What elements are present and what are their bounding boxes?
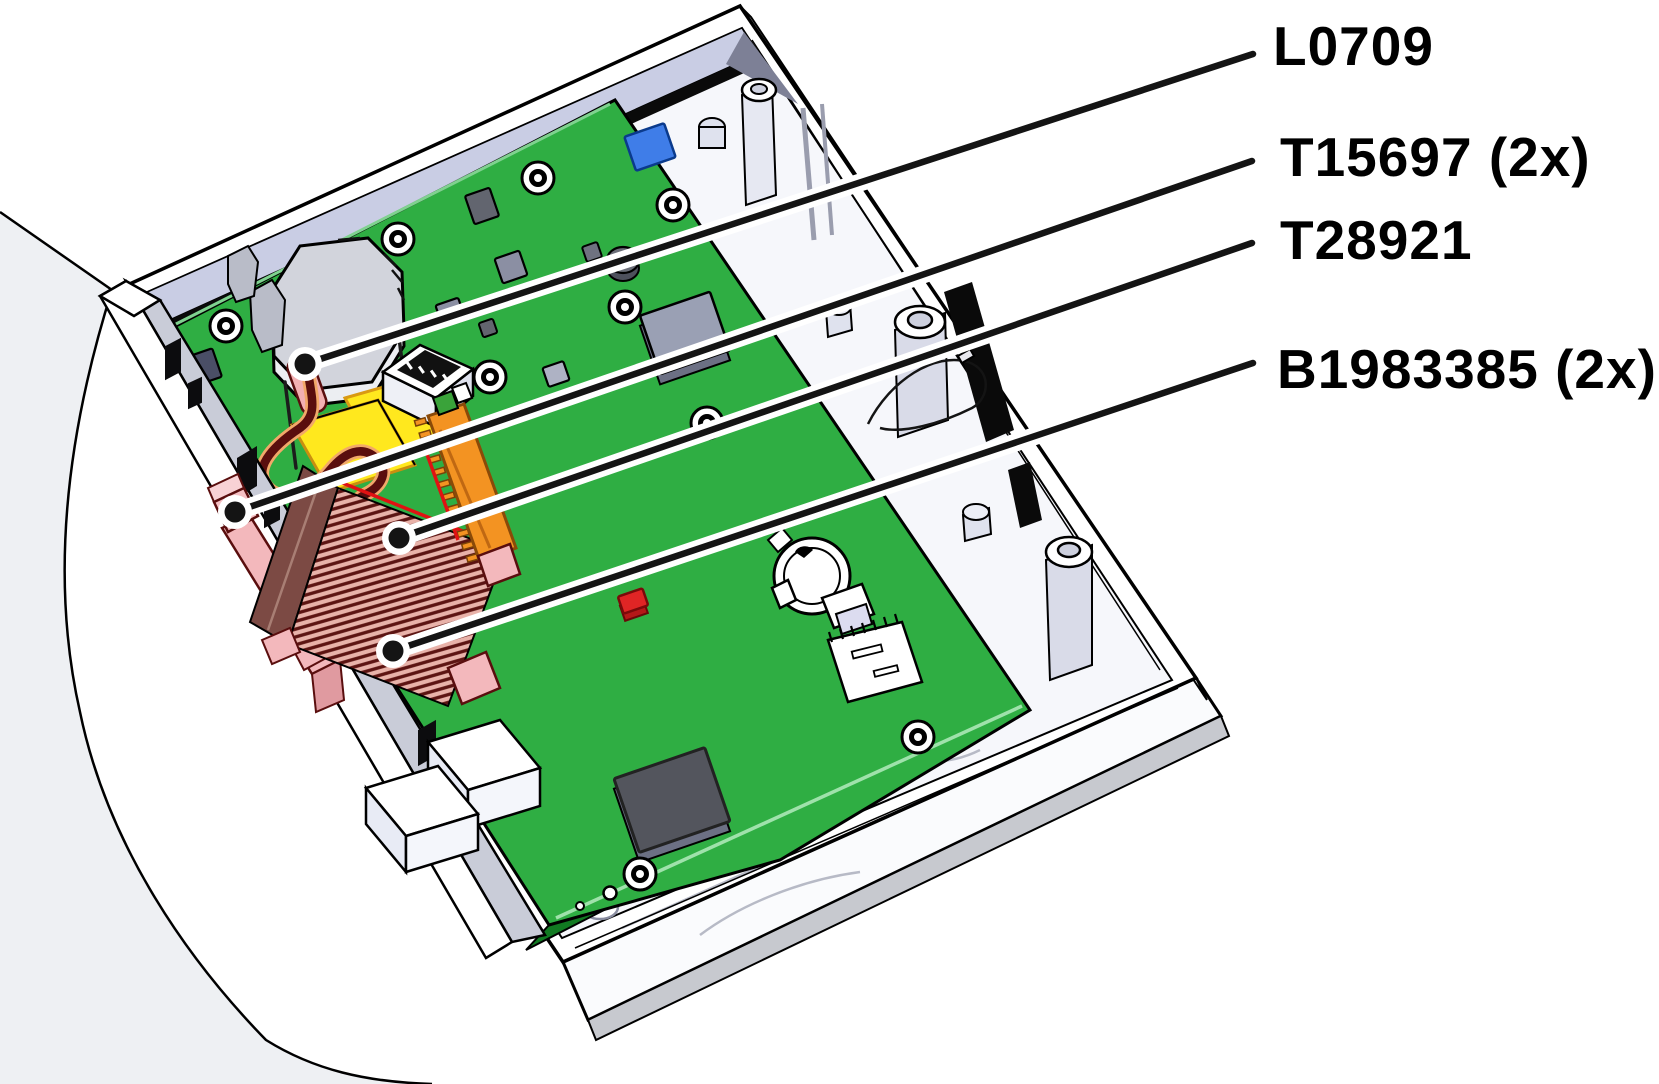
screw	[382, 223, 414, 255]
chip	[478, 318, 497, 337]
device-diagram: L0709 T15697 (2x) T28921 B1983385 (2x)	[0, 0, 1659, 1084]
callout-label: T15697 (2x)	[1280, 126, 1591, 188]
screw	[210, 310, 242, 342]
pcb-hole	[576, 902, 584, 910]
callout-label: T28921	[1280, 209, 1473, 271]
screw	[474, 361, 506, 393]
screw	[624, 858, 656, 890]
screw	[902, 721, 934, 753]
screw	[522, 162, 554, 194]
hardware-callout-figure: L0709 T15697 (2x) T28921 B1983385 (2x)	[0, 0, 1659, 1084]
metal-tab	[228, 246, 258, 302]
pcb-hole	[604, 887, 617, 900]
screw	[657, 189, 689, 221]
callout-label: L0709	[1273, 15, 1434, 77]
callout-label: B1983385 (2x)	[1277, 338, 1657, 400]
screw	[609, 291, 641, 323]
